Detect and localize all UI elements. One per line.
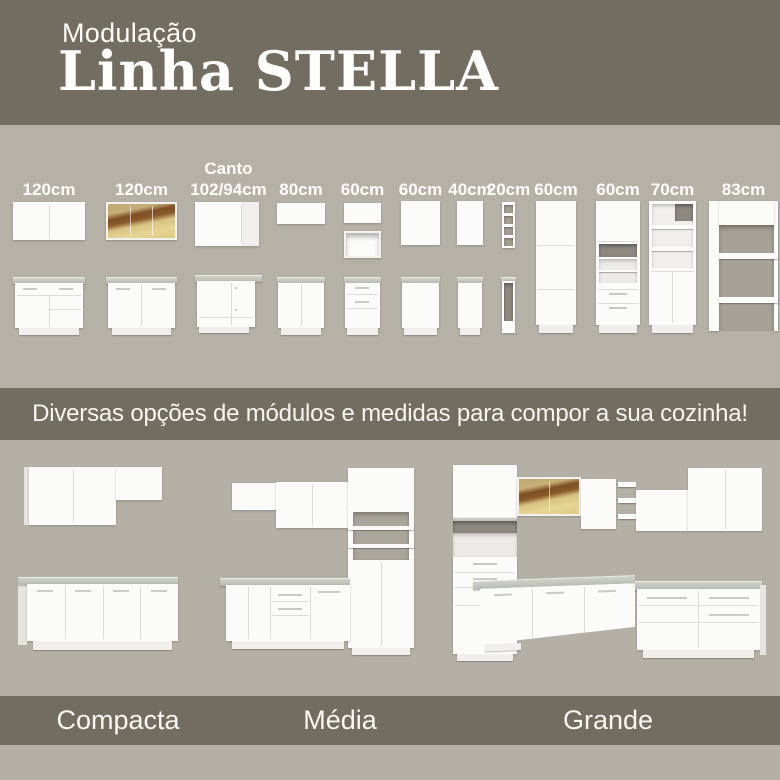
kitchen-size-label-media: Média [303, 705, 377, 736]
banner: Diversas opções de módulos e medidas par… [0, 388, 780, 440]
plinth [112, 328, 171, 335]
module-col-120-b: 120cm [106, 125, 177, 388]
module-col-canto: Canto 102/94cm [195, 125, 262, 388]
base-cabinet-run [27, 584, 178, 641]
wall-cabinet-short [232, 483, 276, 510]
module-col-tall-83: 83cm [709, 125, 778, 388]
corner-base-cabinet [197, 281, 255, 327]
plinth [199, 327, 249, 333]
header: Modulação Linha STELLA [0, 0, 780, 125]
kitchen-compacta [0, 440, 210, 696]
shelf-tower [502, 202, 515, 248]
plinth [232, 641, 344, 649]
plinth [599, 325, 637, 333]
base-cabinet [402, 283, 439, 328]
plinth [347, 328, 378, 335]
module-col-80: 80cm [277, 125, 325, 388]
tall-shelf-tower [649, 201, 696, 325]
base-cabinet [278, 283, 324, 328]
base-cabinet [15, 283, 83, 328]
drawer-base-cabinet [345, 283, 380, 328]
wall-cabinet [276, 482, 348, 528]
wall-cabinet-short [116, 467, 162, 500]
glass-wall-cabinet [106, 202, 177, 240]
banner-text: Diversas opções de módulos e medidas par… [32, 400, 748, 428]
kitchen-size-label-grande: Grande [563, 705, 653, 736]
tall-open-frame [709, 201, 778, 331]
module-size-label: 83cm [685, 153, 780, 200]
wall-cabinet [401, 201, 440, 245]
plinth [643, 650, 754, 658]
module-col-60-a: 60cm [344, 125, 381, 388]
base-cabinet [108, 283, 175, 328]
tall-tower [348, 468, 414, 655]
wall-cabinet [277, 203, 325, 224]
page-title: Linha STELLA [58, 42, 499, 100]
modules-section: 120cm 120cm [0, 125, 780, 388]
size-labels-band: Compacta Média Grande [0, 696, 780, 745]
module-col-120-a: 120cm [13, 125, 85, 388]
corner-wall-cabinet [195, 202, 259, 246]
kitchens-section [0, 440, 780, 696]
wall-cabinet [688, 468, 762, 531]
tall-pantry-cabinet [536, 201, 576, 325]
wall-cabinet [581, 479, 616, 529]
wall-cabinet-short [636, 490, 688, 531]
poster: Modulação Linha STELLA 120cm 120cm [0, 0, 780, 780]
wall-cabinet [344, 203, 381, 223]
open-base-shelf [502, 281, 515, 333]
plinth [539, 325, 573, 333]
kitchen-grande [440, 440, 780, 696]
plinth [281, 328, 321, 335]
plinth [19, 328, 79, 335]
module-col-tall-60-a: 60cm [536, 125, 576, 388]
kitchen-media [210, 440, 440, 696]
plinth [404, 328, 437, 335]
base-cabinet-run [226, 585, 350, 641]
open-niche-box [344, 231, 381, 258]
wall-cabinet [29, 467, 116, 525]
plinth [652, 325, 693, 333]
base-cabinet-run [637, 589, 760, 650]
wall-cabinet [13, 202, 85, 240]
counter-left-leg [473, 569, 635, 653]
wall-cabinet [457, 201, 483, 245]
glass-wall-cabinet [517, 477, 581, 516]
kitchen-size-label-compacta: Compacta [56, 705, 179, 736]
tall-oven-tower [596, 201, 640, 325]
plinth [460, 328, 480, 335]
base-cabinet [458, 283, 482, 328]
corner-open-shelves [618, 482, 636, 528]
plinth [33, 641, 172, 650]
